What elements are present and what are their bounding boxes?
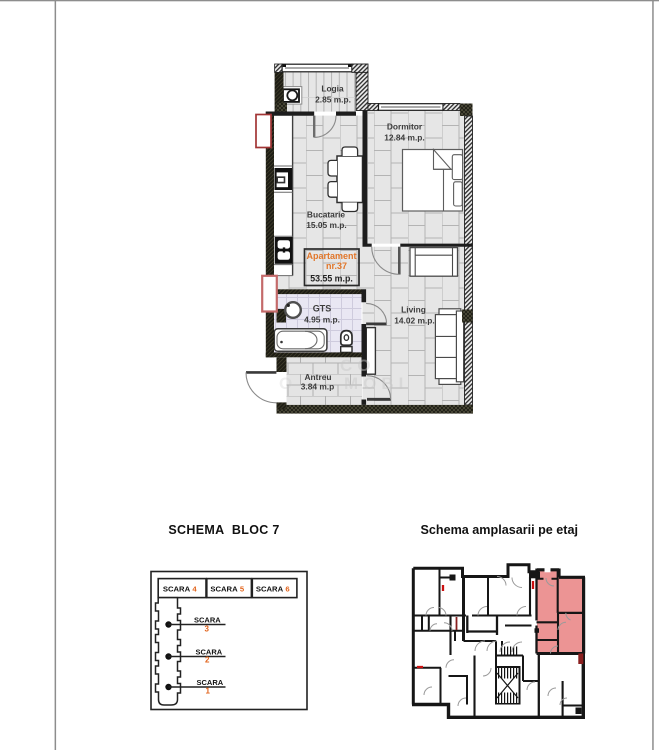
svg-text:4: 4 bbox=[192, 584, 197, 593]
svg-text:5: 5 bbox=[240, 584, 245, 593]
svg-text:2.85 m.p.: 2.85 m.p. bbox=[315, 95, 351, 105]
svg-text:SCARA: SCARA bbox=[194, 616, 221, 625]
svg-text:Dormitor: Dormitor bbox=[387, 122, 423, 132]
svg-text:Antreu: Antreu bbox=[305, 372, 332, 382]
svg-text:2: 2 bbox=[205, 656, 210, 665]
svg-text:3: 3 bbox=[205, 625, 210, 634]
svg-text:GTS: GTS bbox=[313, 304, 332, 314]
svg-text:SCARA: SCARA bbox=[163, 584, 191, 593]
svg-text:14.02 m.p.: 14.02 m.p. bbox=[394, 316, 435, 326]
svg-text:O: O bbox=[279, 374, 297, 393]
svg-text:6: 6 bbox=[285, 584, 289, 593]
svg-text:Living: Living bbox=[401, 305, 426, 315]
svg-text:nr.37: nr.37 bbox=[326, 261, 347, 271]
svg-text:Bucatarie: Bucatarie bbox=[307, 210, 346, 220]
svg-text:MOBI: MOBI bbox=[344, 374, 408, 393]
svg-text:SCARA: SCARA bbox=[197, 678, 224, 687]
svg-text:3.84 m.p: 3.84 m.p bbox=[301, 382, 335, 392]
svg-text:CO: CO bbox=[340, 356, 376, 375]
svg-text:Schema amplasarii pe etaj: Schema amplasarii pe etaj bbox=[421, 523, 579, 537]
svg-text:1: 1 bbox=[206, 687, 211, 696]
svg-text:12.84 m.p.: 12.84 m.p. bbox=[384, 133, 425, 143]
svg-text:SCARA: SCARA bbox=[256, 584, 284, 593]
svg-text:15.05 m.p.: 15.05 m.p. bbox=[306, 220, 347, 230]
svg-text:Logia: Logia bbox=[321, 84, 344, 94]
svg-text:53.55 m.p.: 53.55 m.p. bbox=[310, 274, 353, 284]
svg-text:SCARA: SCARA bbox=[210, 584, 238, 593]
svg-text:4.95 m.p.: 4.95 m.p. bbox=[304, 315, 340, 325]
svg-text:Apartament: Apartament bbox=[306, 251, 356, 261]
svg-text:SCHEMA BLOC 7: SCHEMA BLOC 7 bbox=[168, 523, 279, 537]
